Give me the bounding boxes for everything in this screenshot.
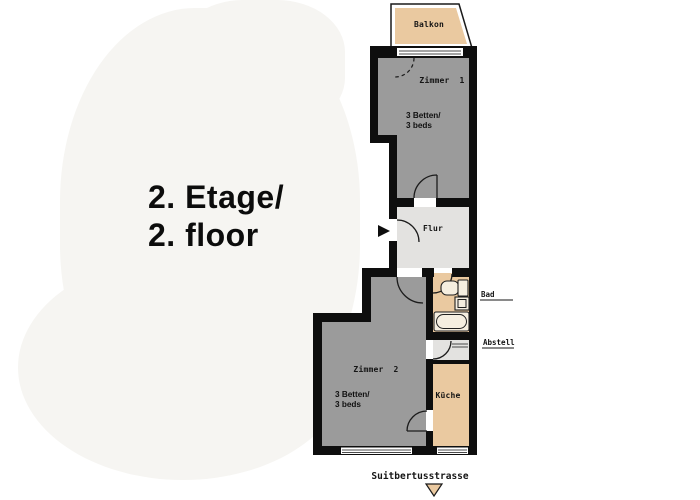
zimmer2-beds-line2: 3 beds	[335, 400, 361, 409]
wall-abstell-kueche	[433, 360, 469, 364]
street-direction-marker	[426, 484, 442, 496]
toilet-icon	[441, 281, 459, 295]
wall-flur-bad-right	[452, 268, 469, 277]
abstell-label: Abstell	[483, 338, 515, 347]
window-kueche	[437, 448, 468, 455]
floor-plan-drawing: Balkon Zimmer 1 3 Betten/ 3 beds Flur Ba…	[0, 0, 700, 500]
zimmer2-label: Zimmer 2	[353, 364, 398, 374]
floor-title-line1: 2. Etage/	[148, 178, 284, 216]
floor-title-line2: 2. floor	[148, 216, 284, 254]
zimmer1-door-opening	[414, 198, 436, 207]
floor-title: 2. Etage/ 2. floor	[148, 178, 284, 254]
zimmer1-beds-line2: 3 beds	[406, 121, 432, 130]
room-flur	[397, 207, 469, 268]
flur-label: Flur	[423, 224, 443, 233]
wall-bad-abstell	[433, 332, 469, 340]
wall-right	[469, 46, 477, 455]
wall-interior-vertical-b	[426, 359, 433, 410]
wall-pillar-flur-bad	[422, 268, 434, 277]
room-kueche	[433, 364, 469, 446]
kueche-label: Küche	[435, 391, 460, 400]
street-label: Suitbertusstrasse	[371, 471, 469, 482]
zimmer1-label: Zimmer 1	[419, 75, 464, 85]
bad-label: Bad	[481, 290, 495, 299]
wall-interior-vertical-a	[426, 277, 433, 340]
wall-left-upper	[370, 46, 378, 143]
wall-left-lower	[313, 313, 322, 455]
entrance-arrow-icon	[378, 225, 390, 237]
toilet-cistern-icon	[458, 280, 468, 296]
zimmer1-beds-line1: 3 Betten/	[406, 111, 441, 120]
balkon-label: Balkon	[414, 20, 444, 29]
zimmer2-beds-line1: 3 Betten/	[335, 390, 370, 399]
window-zimmer2	[341, 448, 412, 455]
balcony-door-opening	[397, 48, 463, 56]
wall-interior-vertical-c	[426, 431, 433, 446]
sink-icon	[455, 297, 469, 310]
floor-plan-page: 2. Etage/ 2. floor	[0, 0, 700, 500]
entrance-door-opening	[389, 219, 397, 241]
